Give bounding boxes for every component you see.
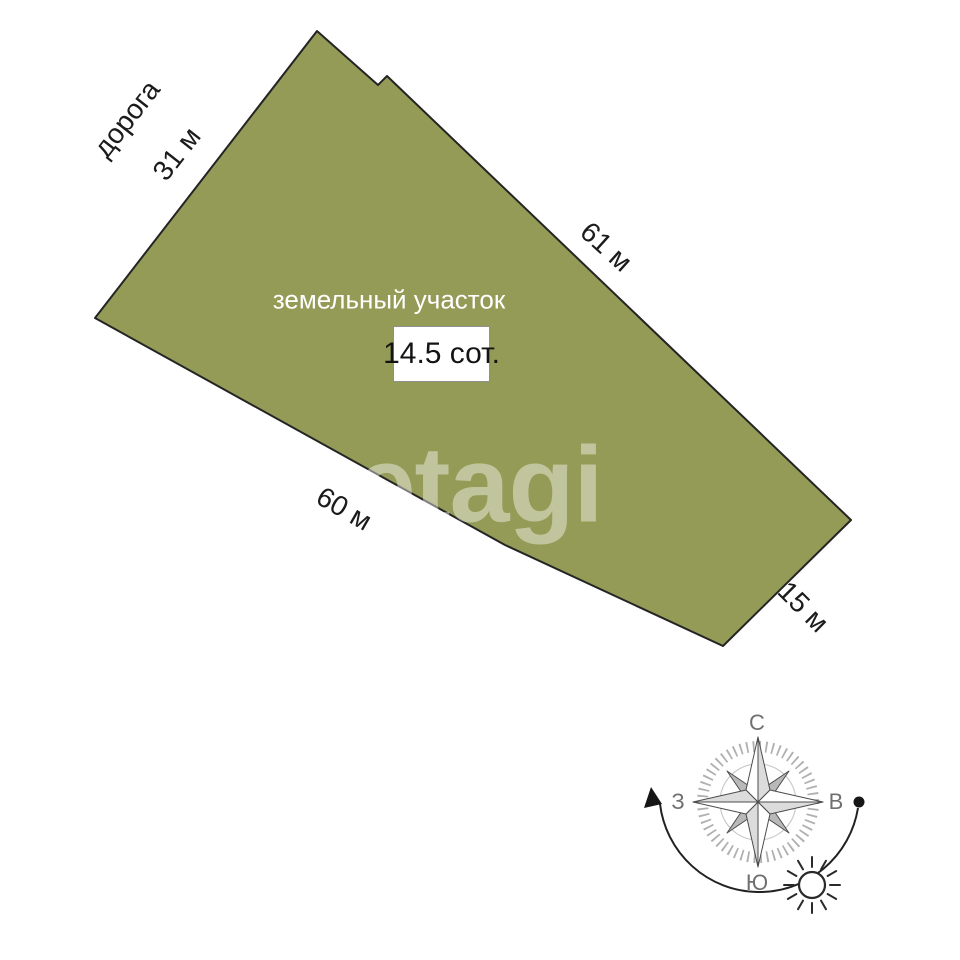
area-value: 14.5 сот. bbox=[383, 337, 500, 371]
plot-name-label: земельный участок bbox=[273, 285, 506, 316]
sunrise-dot bbox=[854, 797, 865, 808]
compass-east-label: В bbox=[829, 789, 844, 814]
sun-icon bbox=[784, 857, 840, 913]
land-plot-diagram: etagi дорога 31 м 61 м 60 м 15 м земельн… bbox=[0, 0, 960, 960]
compass-west-label: З bbox=[671, 789, 684, 814]
compass-north-label: С bbox=[749, 710, 765, 735]
compass-spike-e-north-half bbox=[758, 790, 823, 802]
area-box: 14.5 сот. bbox=[393, 326, 490, 382]
compass-rose: С В З Ю bbox=[620, 688, 890, 933]
